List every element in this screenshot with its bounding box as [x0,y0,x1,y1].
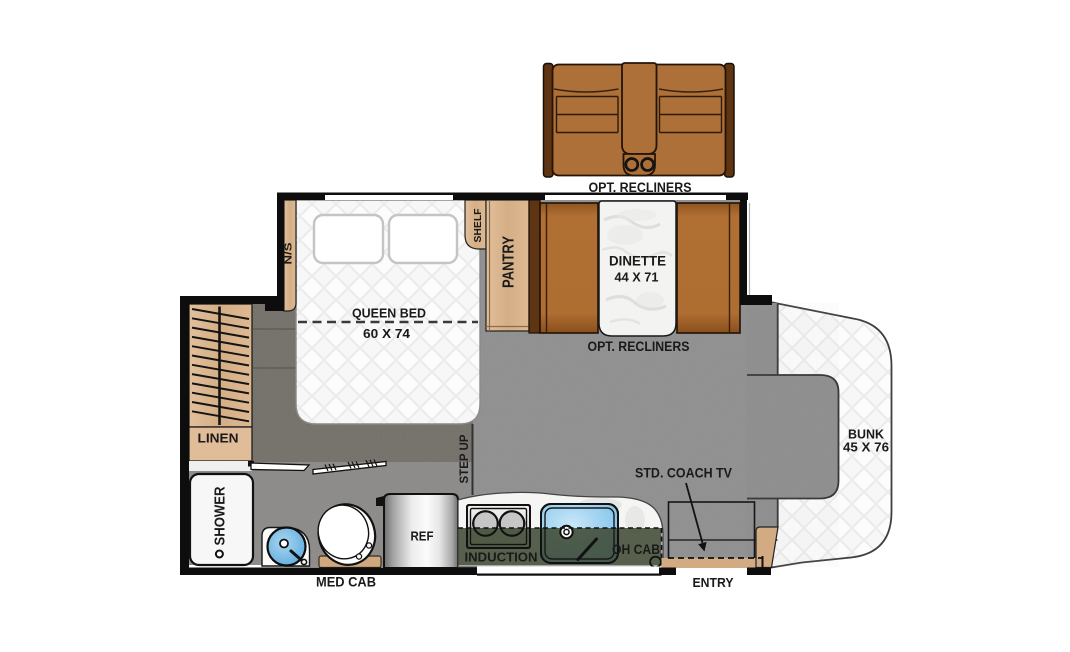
svg-text:60 X 74: 60 X 74 [363,326,411,341]
svg-text:STD. COACH TV: STD. COACH TV [635,466,732,481]
svg-text:44 X 71: 44 X 71 [615,270,659,285]
svg-text:OH CAB: OH CAB [612,542,660,557]
svg-text:ENTRY: ENTRY [693,575,734,590]
svg-text:PANTRY: PANTRY [501,236,518,288]
svg-text:STEP UP: STEP UP [457,435,471,484]
svg-text:SHOWER: SHOWER [212,486,229,545]
svg-text:MED CAB: MED CAB [316,573,376,589]
svg-text:REF: REF [411,530,434,544]
svg-text:SHELF: SHELF [472,208,484,243]
svg-text:45 X 76: 45 X 76 [843,440,889,455]
svg-text:N/S: N/S [283,243,295,265]
svg-text:LINEN: LINEN [198,432,239,446]
svg-text:OPT. RECLINERS: OPT. RECLINERS [588,339,690,354]
svg-text:QUEEN BED: QUEEN BED [352,306,426,321]
svg-text:INDUCTION: INDUCTION [465,549,538,564]
svg-text:DINETTE: DINETTE [609,253,666,268]
